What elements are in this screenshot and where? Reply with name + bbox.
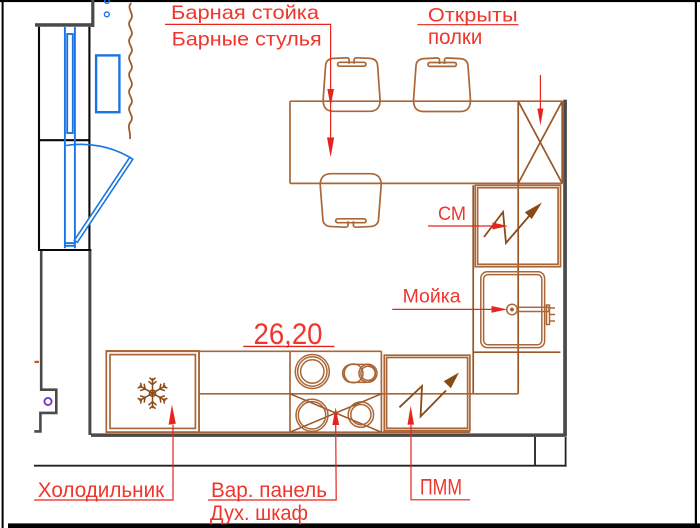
svg-text:Холодильник: Холодильник	[38, 478, 165, 502]
svg-text:Вар. панель: Вар. панель	[211, 479, 327, 502]
svg-text:ПММ: ПММ	[420, 475, 462, 500]
svg-text:Открыты: Открыты	[428, 5, 518, 26]
svg-text:СМ: СМ	[438, 204, 466, 225]
svg-text:Барные стулья: Барные стулья	[172, 29, 322, 50]
svg-text:Дух. шкаф: Дух. шкаф	[210, 502, 308, 525]
svg-text:полки: полки	[428, 25, 482, 49]
svg-text:Барная стойка: Барная стойка	[171, 3, 319, 24]
svg-text:Мойка: Мойка	[403, 287, 461, 308]
